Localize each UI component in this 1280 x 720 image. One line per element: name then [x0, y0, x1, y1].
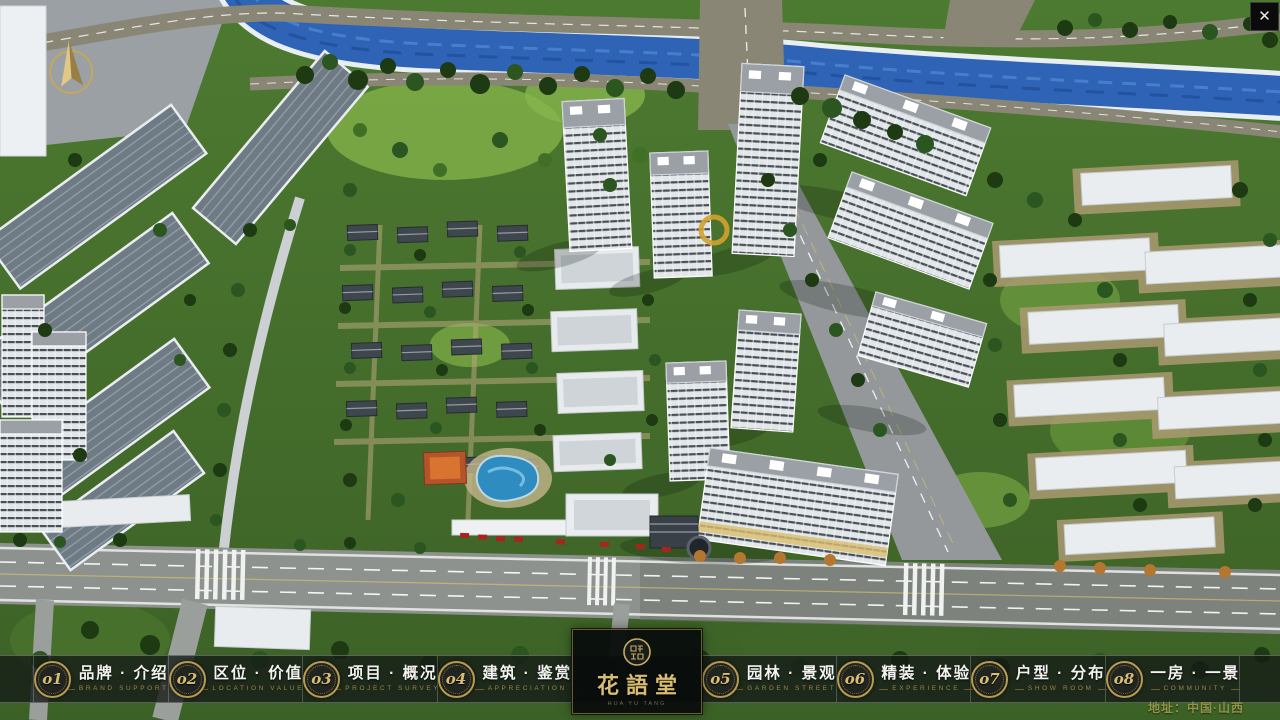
- brand-name: 花語堂: [590, 668, 684, 700]
- compass-north-indicator: [42, 34, 100, 100]
- sales-presentation-screen: ✕ o1 品牌 · 介绍 BRAND SUPPORT o2 区位 · 价值 LO…: [0, 0, 1280, 720]
- castle-tower: [0, 6, 46, 156]
- nav-item-architecture[interactable]: o4 建筑 · 鉴赏 APPRECIATION: [438, 656, 573, 702]
- bottom-menu-bar: o1 品牌 · 介绍 BRAND SUPPORT o2 区位 · 价值 LOCA…: [0, 655, 1280, 703]
- nav-label-en: APPRECIATION: [471, 685, 584, 692]
- nav-item-interior[interactable]: o6 精装 · 体验 EXPERIENCE: [837, 656, 972, 702]
- nav-item-project[interactable]: o3 项目 · 概况 PROJECT SURVEY: [303, 656, 438, 702]
- pool: [464, 448, 552, 508]
- close-icon: ✕: [1258, 9, 1271, 24]
- nav-item-garden[interactable]: o5 园林 · 景观 GARDEN STREET: [702, 656, 837, 702]
- nav-item-location[interactable]: o2 区位 · 价值 LOCATION VALUE: [169, 656, 304, 702]
- close-button[interactable]: ✕: [1250, 2, 1279, 31]
- nav-badge-05: o5: [702, 661, 739, 698]
- nav-label-zh: 品牌 · 介绍: [79, 665, 169, 682]
- brand-logo-panel: 花語堂 HUA YU TANG: [572, 629, 702, 714]
- nav-label-zh: 户型 · 分布: [1016, 665, 1106, 682]
- nav-badge-02: o2: [169, 661, 206, 698]
- nav-label-zh: 一房 · 一景: [1150, 665, 1240, 682]
- nav-badge-03: o3: [303, 661, 340, 698]
- bar-right-cap: [1240, 656, 1280, 702]
- nav-label-en: EXPERIENCE: [875, 685, 977, 692]
- bar-left-cap: [0, 656, 34, 702]
- nav-label-zh: 精装 · 体验: [881, 665, 971, 682]
- nav-badge-04: o4: [438, 661, 475, 698]
- nav-label-en: GARDEN STREET: [730, 685, 853, 692]
- project-address: 地址：中国·山西: [1148, 699, 1244, 716]
- brand-seal-icon: [622, 637, 652, 667]
- brand-tagline: HUA YU TANG: [608, 701, 667, 707]
- site-map-render: [0, 0, 1280, 720]
- nav-label-en: BRAND SUPPORT: [62, 685, 186, 692]
- nav-label-en: COMMUNITY: [1147, 685, 1244, 692]
- kindergarten: [423, 451, 466, 484]
- nav-badge-07: o7: [971, 661, 1008, 698]
- nav-label-zh: 园林 · 景观: [747, 665, 837, 682]
- nav-label-zh: 区位 · 价值: [213, 665, 303, 682]
- nav-badge-06: o6: [837, 661, 874, 698]
- nav-item-floorplans[interactable]: o7 户型 · 分布 SHOW ROOM: [971, 656, 1106, 702]
- nav-item-views[interactable]: o8 一房 · 一景 COMMUNITY: [1106, 656, 1241, 702]
- nav-label-zh: 项目 · 概况: [348, 665, 438, 682]
- nav-badge-01: o1: [34, 661, 71, 698]
- nav-label-zh: 建筑 · 鉴赏: [482, 665, 572, 682]
- nav-label-en: SHOW ROOM: [1011, 685, 1111, 692]
- nav-badge-08: o8: [1106, 661, 1143, 698]
- nav-item-brand[interactable]: o1 品牌 · 介绍 BRAND SUPPORT: [34, 656, 169, 702]
